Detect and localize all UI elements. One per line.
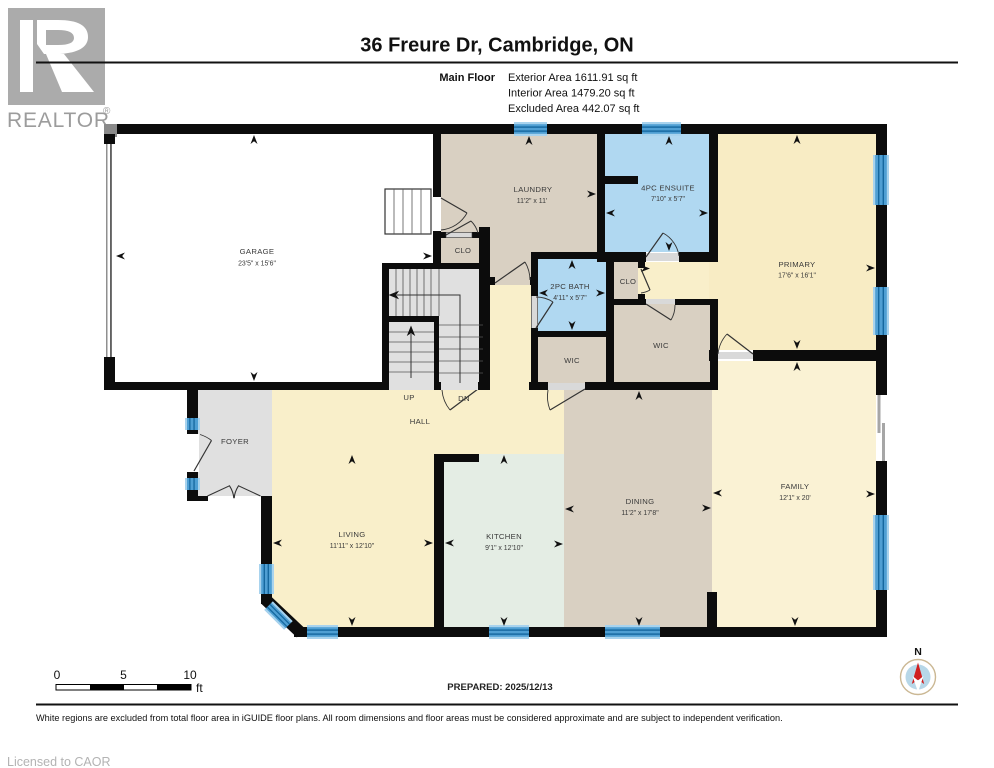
svg-text:2PC BATH: 2PC BATH (550, 282, 589, 291)
svg-text:10: 10 (183, 668, 197, 682)
svg-text:Licensed to CAOR: Licensed to CAOR (7, 755, 111, 768)
svg-text:36 Freure Dr, Cambridge, ON: 36 Freure Dr, Cambridge, ON (360, 35, 633, 57)
svg-text:11'2" x 11': 11'2" x 11' (517, 198, 548, 205)
svg-text:DN: DN (458, 394, 470, 403)
svg-text:Exterior Area 1611.91 sq ft: Exterior Area 1611.91 sq ft (508, 72, 637, 84)
svg-text:CLO: CLO (620, 277, 637, 286)
svg-text:17'6" x 16'1": 17'6" x 16'1" (778, 273, 816, 280)
svg-text:11'11" x 12'10": 11'11" x 12'10" (330, 543, 375, 550)
svg-text:0: 0 (54, 668, 61, 682)
svg-text:DINING: DINING (626, 497, 655, 506)
svg-text:5: 5 (120, 668, 127, 682)
svg-text:FAMILY: FAMILY (781, 482, 810, 491)
svg-text:White regions are excluded fro: White regions are excluded from total fl… (36, 713, 783, 723)
svg-text:KITCHEN: KITCHEN (486, 532, 522, 541)
svg-text:Excluded Area 442.07 sq ft: Excluded Area 442.07 sq ft (508, 103, 639, 115)
svg-text:11'2" x 17'8": 11'2" x 17'8" (621, 510, 659, 517)
svg-text:WIC: WIC (653, 341, 669, 350)
svg-text:Interior Area 1479.20 sq ft: Interior Area 1479.20 sq ft (508, 88, 635, 100)
svg-text:LAUNDRY: LAUNDRY (514, 185, 553, 194)
svg-text:ft: ft (196, 681, 203, 695)
svg-text:4'11" x 5'7": 4'11" x 5'7" (553, 295, 587, 302)
svg-text:CLO: CLO (455, 246, 472, 255)
svg-text:WIC: WIC (564, 356, 580, 365)
svg-text:9'1" x 12'10": 9'1" x 12'10" (485, 545, 523, 552)
svg-text:7'10" x 5'7": 7'10" x 5'7" (651, 196, 686, 203)
svg-text:REALTOR: REALTOR (7, 109, 110, 132)
svg-text:23'5" x 15'6": 23'5" x 15'6" (238, 261, 276, 268)
svg-text:LIVING: LIVING (338, 530, 365, 539)
svg-text:4PC ENSUITE: 4PC ENSUITE (641, 184, 695, 193)
svg-text:Main Floor: Main Floor (439, 72, 495, 84)
svg-text:UP: UP (403, 393, 414, 402)
svg-text:®: ® (103, 106, 111, 117)
svg-text:PRIMARY: PRIMARY (779, 260, 816, 269)
svg-text:N: N (914, 646, 922, 658)
svg-text:12'1" x 20': 12'1" x 20' (779, 495, 811, 502)
svg-text:HALL: HALL (410, 417, 431, 426)
svg-text:FOYER: FOYER (221, 437, 249, 446)
svg-text:GARAGE: GARAGE (240, 247, 275, 256)
svg-text:PREPARED: 2025/12/13: PREPARED: 2025/12/13 (447, 682, 552, 693)
